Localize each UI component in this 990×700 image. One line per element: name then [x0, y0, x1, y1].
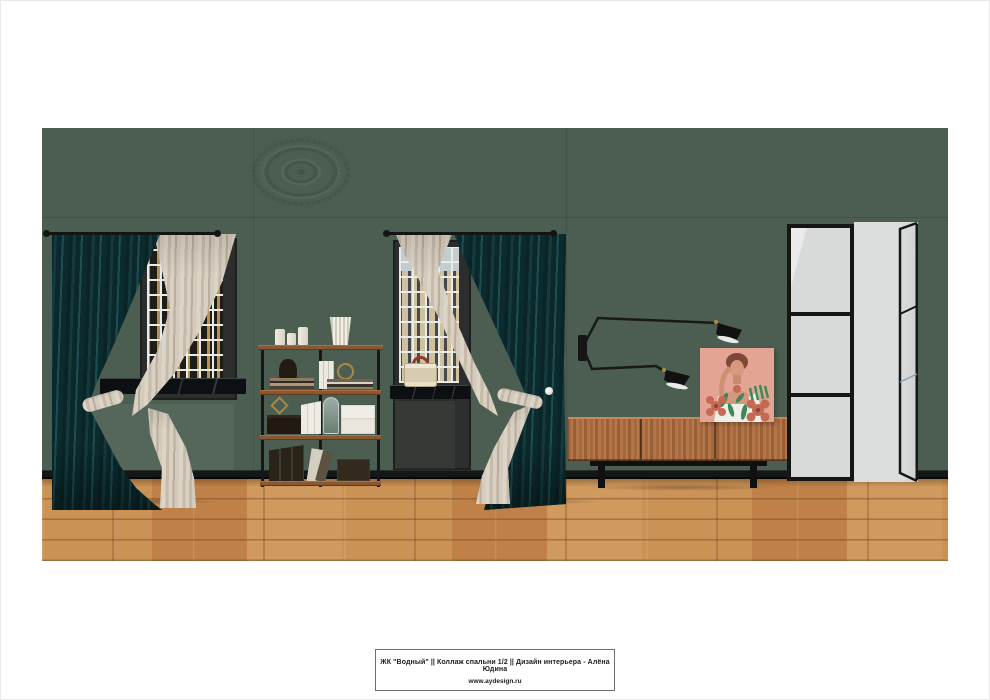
- console-base-bar: [590, 461, 767, 466]
- pleated-vase: [329, 317, 352, 345]
- left-curtain-rod: [48, 232, 216, 235]
- tieback-ball: [545, 387, 553, 395]
- shelf-post: [261, 345, 264, 487]
- gift-box-stack: [341, 405, 375, 434]
- glass-cloche: [323, 397, 339, 434]
- book-stack: [327, 379, 373, 389]
- tv-console: [568, 417, 789, 461]
- shelf-board: [258, 345, 383, 350]
- shelf-board: [260, 390, 381, 395]
- book-stack: [270, 378, 314, 389]
- open-door-panel: [854, 222, 918, 482]
- lamp-lower-arm: [586, 355, 666, 372]
- ceiling-medallion: [256, 142, 346, 202]
- door-mullion: [791, 393, 850, 397]
- lamp-brass-joint: [714, 320, 718, 324]
- project-caption: ЖК "Водный" || Коллаж спальни 1/2 || Диз…: [376, 659, 614, 673]
- brass-ring-decor: [337, 363, 354, 380]
- wall-panel-seam: [42, 217, 948, 218]
- lamp-brass-joint: [662, 368, 666, 372]
- wall-panel-seam: [566, 128, 567, 470]
- dark-magazine-files: [269, 445, 304, 481]
- console-panel-divider: [640, 419, 642, 459]
- rod-finial: [43, 230, 50, 237]
- glass-partition-panel: [787, 224, 854, 481]
- shelf-board: [260, 481, 381, 486]
- presentation-sheet: ЖК "Водный" || Коллаж спальни 1/2 || Диз…: [0, 0, 990, 700]
- rod-finial: [383, 230, 390, 237]
- storage-box: [337, 459, 370, 481]
- rod-finial: [550, 230, 557, 237]
- candle: [287, 333, 296, 345]
- storage-box: [267, 415, 302, 434]
- door-mullion: [791, 312, 850, 316]
- radio-speaker: [404, 363, 437, 387]
- brass-diamond-decor: [270, 396, 288, 414]
- right-curtain-rod: [388, 232, 552, 235]
- title-block: ЖК "Водный" || Коллаж спальни 1/2 || Диз…: [375, 649, 615, 691]
- console-leg: [598, 461, 605, 488]
- elevation-collage: [42, 128, 948, 561]
- website-caption: www.aydesign.ru: [376, 678, 614, 685]
- right-under-window-panel: [395, 401, 455, 469]
- open-door-frame-lines: [854, 222, 918, 482]
- artwork-canvas: [700, 348, 774, 422]
- candle: [298, 327, 308, 345]
- shelf-board: [260, 435, 381, 440]
- white-magazine-files: [301, 401, 321, 434]
- right-window-marble-sill: [390, 385, 470, 399]
- shelf-post: [377, 345, 380, 487]
- console-leg: [750, 461, 757, 488]
- lamp-upper-arm: [586, 318, 718, 341]
- rod-finial: [214, 230, 221, 237]
- console-panel-divider: [714, 419, 716, 459]
- candle: [275, 329, 285, 345]
